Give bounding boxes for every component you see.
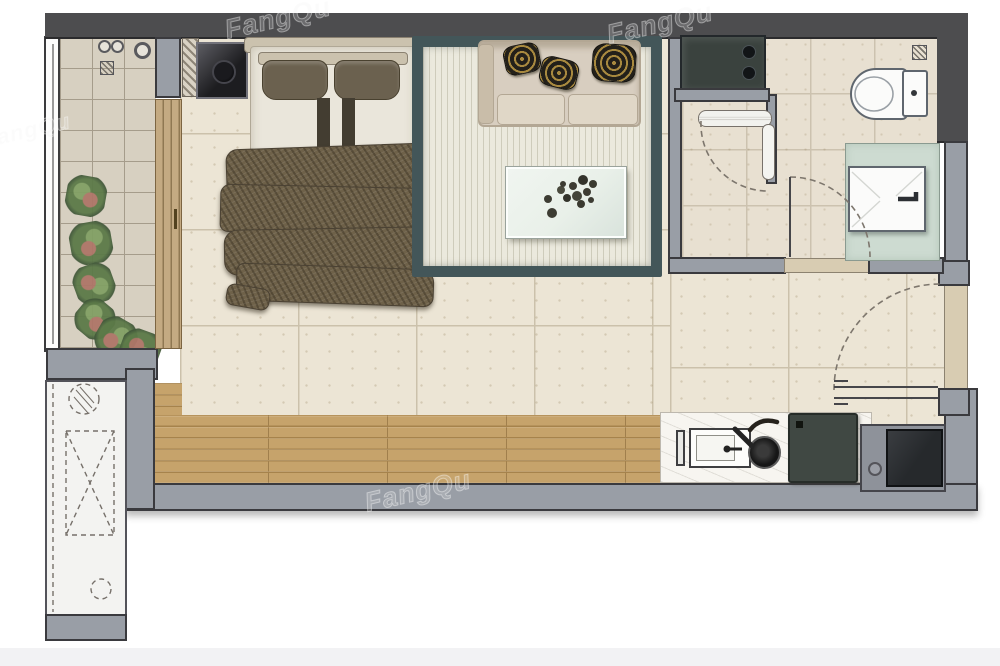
- spatula-icon: [750, 421, 777, 430]
- toilet-bowl-inner: [855, 77, 893, 111]
- vanity-faucet-icon: [898, 192, 916, 199]
- entry-door-swing-icon: [834, 284, 940, 390]
- entry-door-leaf: [834, 387, 938, 398]
- pipe-hatch: [74, 387, 94, 413]
- pipe-icon: [91, 579, 111, 599]
- bathroom-door-swing-icon: [790, 177, 870, 257]
- floor-plan: FangQu FangQu FangQu FangQu: [0, 0, 1000, 666]
- shower-door-swing-icon: [701, 121, 766, 191]
- shaft-void-x: [66, 431, 114, 535]
- page-bottom-strip: [0, 648, 1000, 666]
- linework-overlay: [0, 0, 1000, 666]
- entry-door-handle: [834, 381, 848, 404]
- toilet-flush-button: [911, 90, 917, 96]
